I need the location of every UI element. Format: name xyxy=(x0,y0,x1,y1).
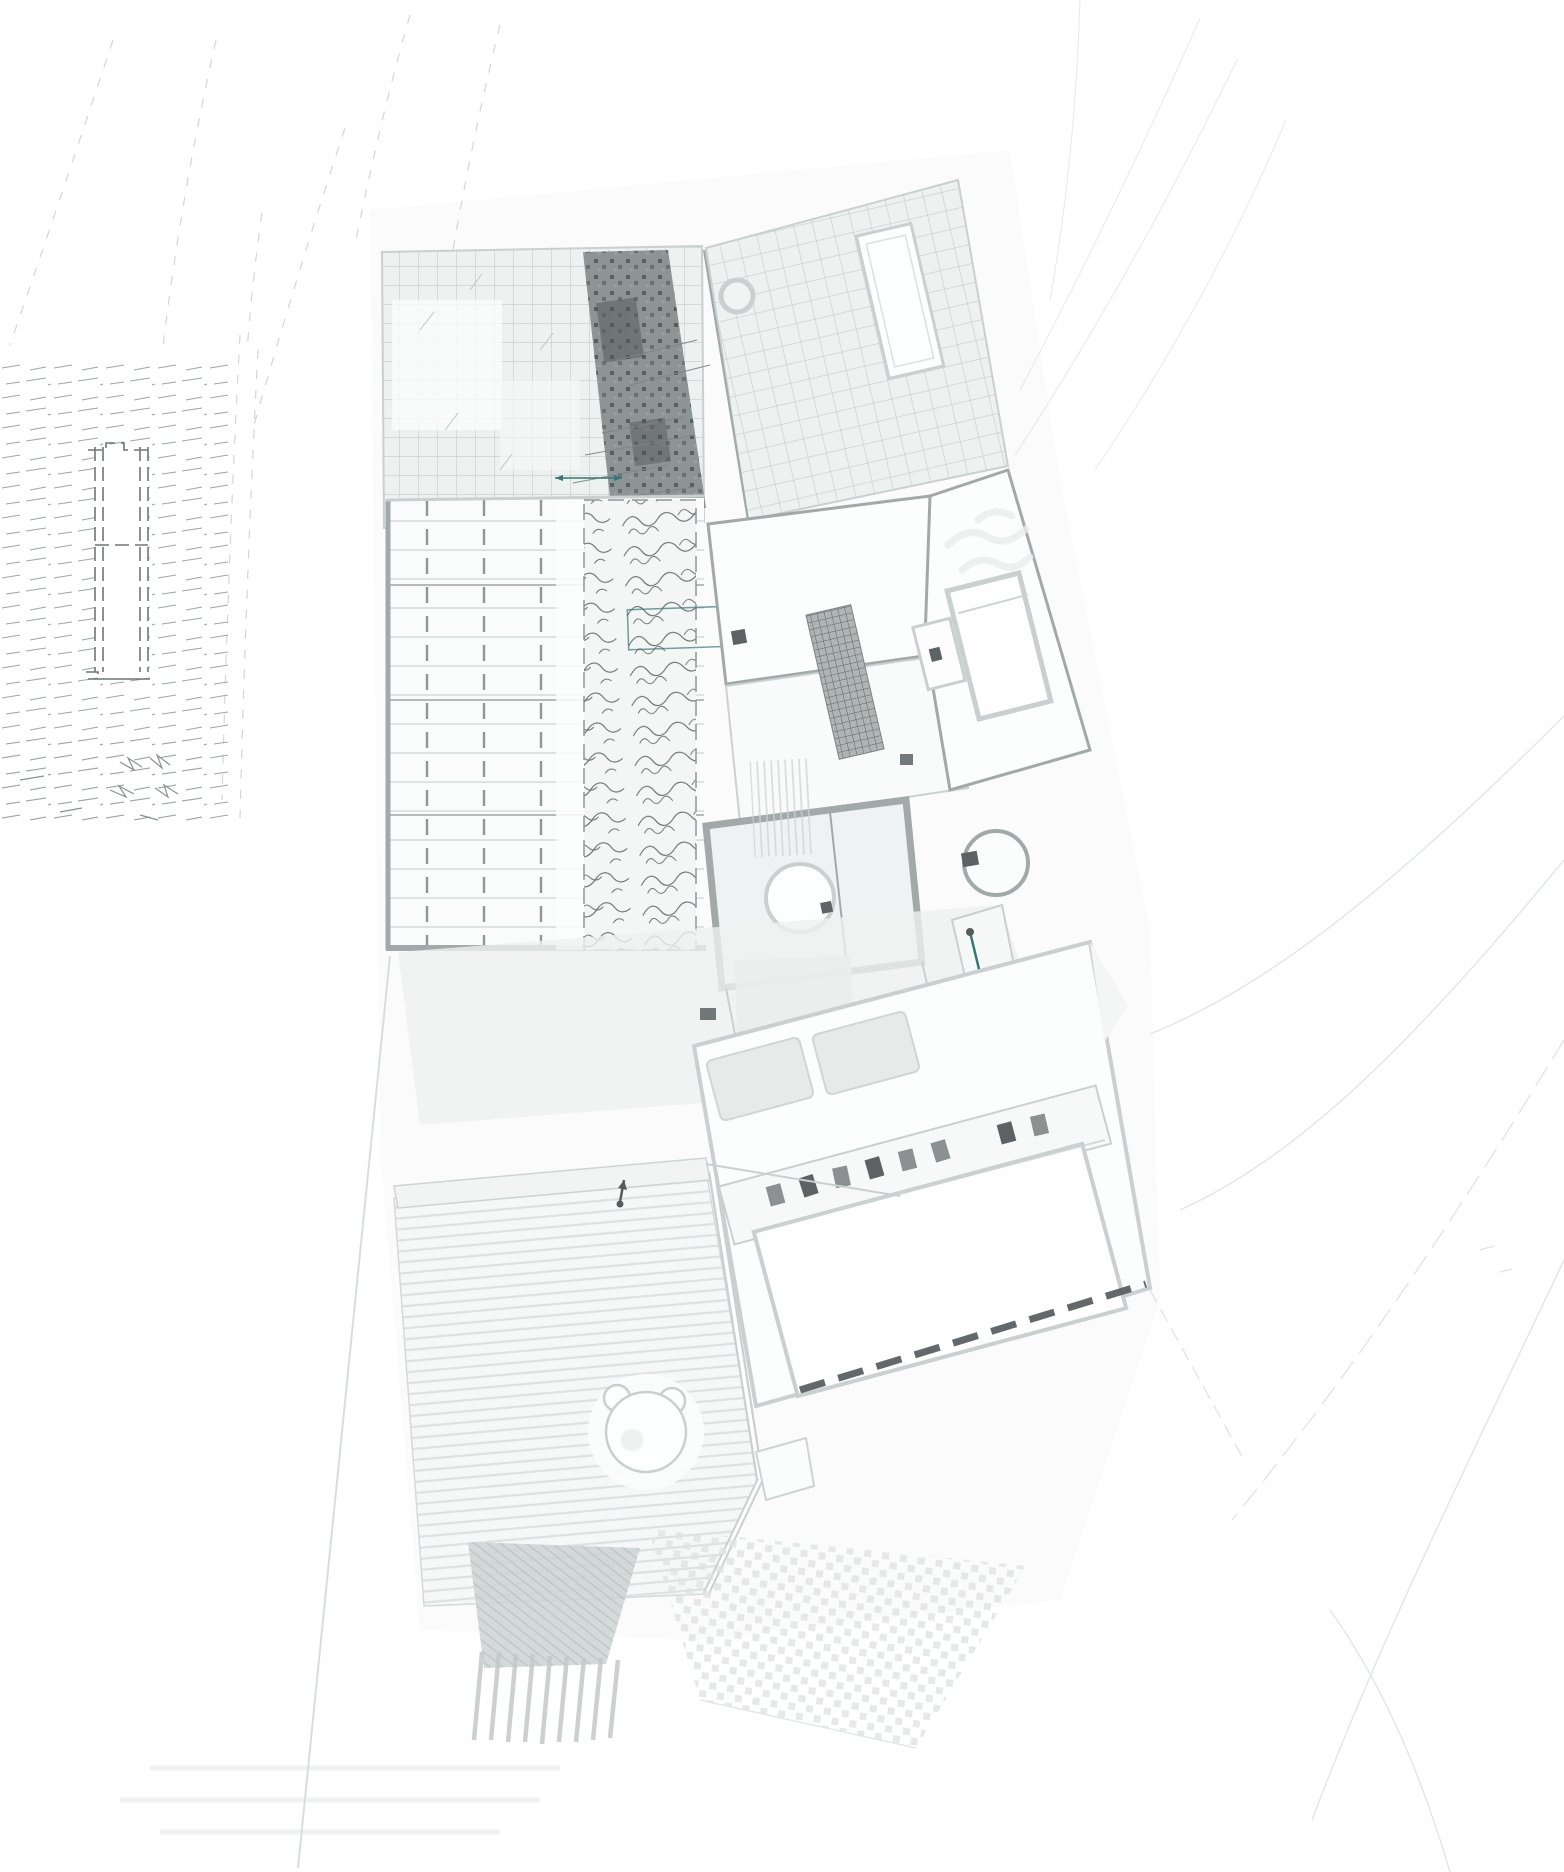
furniture-dot xyxy=(731,629,747,645)
pergola-planter-column xyxy=(584,500,696,950)
roof-vent-circle xyxy=(721,280,753,312)
bath-striped-wall xyxy=(750,759,813,858)
hatched-terrace-block xyxy=(0,358,234,825)
round-table-with-ears xyxy=(588,1374,704,1490)
plan-sheet xyxy=(0,0,1564,1872)
pergola-terrace xyxy=(386,496,733,950)
plan-drawing xyxy=(0,0,1564,1872)
